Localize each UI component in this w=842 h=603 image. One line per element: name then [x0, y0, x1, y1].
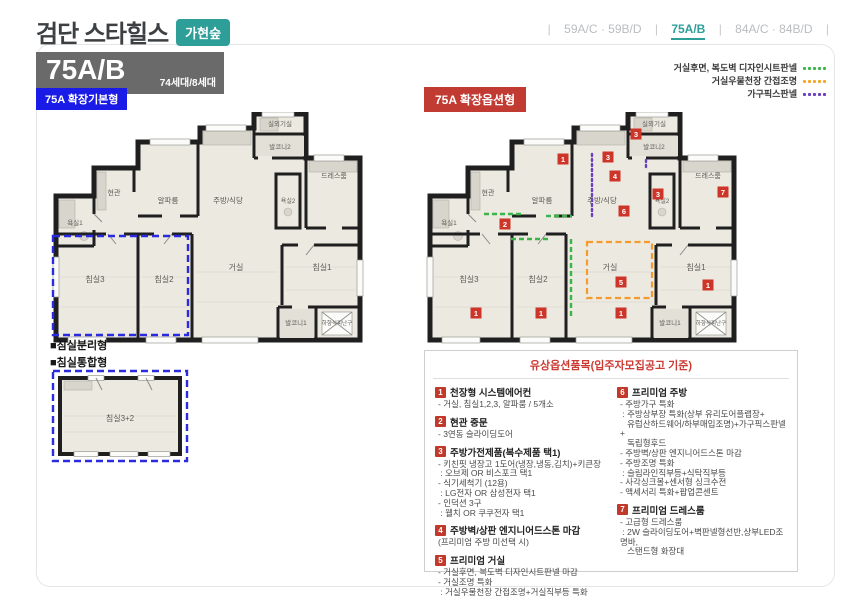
option-item-3: 3 주방가전제품(복수제품 택1) - 키친핏 냉장고 1도어(냉장,냉동,김치… [435, 445, 605, 519]
orange-dashed-swatch [801, 75, 826, 88]
legend-label: 거실우물천장 간접조명 [712, 76, 797, 86]
option-marker: 3 [656, 190, 660, 199]
floorplan-geometry-instance [53, 112, 363, 343]
tab-separator: | [548, 22, 551, 36]
option-item-4: 4 주방벽/상판 엔지니어드스톤 마감 (프리미엄 주방 미선택 시) [435, 523, 605, 548]
option-line: : 웰치 OR 쿠쿠전자 택1 [435, 509, 605, 519]
option-line: - 액세서리 특화+팝업콘센트 [617, 488, 787, 498]
option-marker: 7 [721, 188, 725, 197]
tab-separator: | [719, 22, 722, 36]
option-number-badge: 2 [435, 416, 446, 427]
option-marker: 5 [619, 278, 623, 287]
option-title: 프리미엄 거실 [450, 553, 505, 567]
legend-row-designsheet: 거실후면, 복도벽 디자인시트판넬 [674, 62, 826, 75]
legend-label: 거실후면, 복도벽 디자인시트판넬 [674, 63, 797, 73]
option-number-badge: 6 [617, 387, 628, 398]
option-number-badge: 4 [435, 525, 446, 536]
option-line: - 3연동 슬라이딩도어 [435, 430, 605, 440]
tab-separator: | [655, 22, 658, 36]
option-line: (프리미엄 주방 미선택 시) [435, 538, 605, 548]
legend-row-fix-panel: 가구픽스판넬 [674, 88, 826, 101]
option-item-1: 1 천장형 시스템에어컨 - 거실, 침실1,2,3, 알파룸 / 5개소 [435, 385, 605, 410]
plan-basic-badge: 75A 확장기본형 [36, 88, 127, 110]
option-line: : 거실우물천장 간접조명+거실직부등 특화 [435, 588, 605, 598]
options-panel-title: 유상옵션품목(입주자모집공고 기준) [433, 351, 789, 379]
room-label-combined: 침실3+2 [106, 413, 135, 423]
option-line: 유럽산하드웨어/하부매입조명)+가구픽스판넬+ [617, 420, 787, 440]
tab-separator: | [826, 22, 829, 36]
page-title: 검단 스타힐스 [36, 14, 168, 49]
option-marker: 2 [503, 220, 507, 229]
tab-75-active[interactable]: 75A/B [671, 22, 705, 40]
header: 검단 스타힐스가현숲 [36, 14, 230, 49]
option-marker: 1 [474, 309, 478, 318]
window [74, 452, 98, 457]
option-marker: 1 [619, 309, 623, 318]
option-marker: 1 [561, 155, 565, 164]
option-title: 프리미엄 주방 [632, 385, 687, 399]
option-marker: 3 [606, 153, 610, 162]
type-tab-bar: | 59A/C · 59B/D | 75A/B | 84A/C · 84B/D … [543, 22, 834, 36]
option-item-5: 5 프리미엄 거실 - 거실후면, 복도벽 디자인시트판넬 마감 - 거실조명 … [435, 553, 605, 597]
option-item-6: 6 프리미엄 주방 - 주방가구 특화 : 주방상부장 특화(상부 유리도어플랩… [617, 385, 787, 498]
tab-59[interactable]: 59A/C · 59B/D [564, 22, 641, 36]
option-marker: 1 [539, 309, 543, 318]
option-marker: 3 [634, 130, 638, 139]
option-number-badge: 1 [435, 387, 446, 398]
site-badge: 가현숲 [176, 19, 230, 46]
purple-dashed-swatch [801, 88, 826, 101]
option-item-2: 2 현관 중문 - 3연동 슬라이딩도어 [435, 415, 605, 440]
window [148, 452, 170, 457]
floorplan-option: 1 3 3 4 3 7 2 6 5 1 1 1 1 [424, 112, 744, 347]
option-line: : 2W 슬라이딩도어+벽판넬형선반,상부LED조명바, [617, 528, 787, 548]
green-dashed-swatch [801, 62, 826, 75]
option-item-7: 7 프리미엄 드레스룸 - 고급형 드레스룸 : 2W 슬라이딩도어+벽판넬형선… [617, 503, 787, 557]
floorplan-combined-mini: 침실3+2 [50, 368, 190, 464]
legend-row-indirect-light: 거실우물천장 간접조명 [674, 75, 826, 88]
closet [64, 381, 92, 390]
options-column-right: 6 프리미엄 주방 - 주방가구 특화 : 주방상부장 특화(상부 유리도어플랩… [617, 385, 787, 603]
tab-84[interactable]: 84A/C · 84B/D [735, 22, 812, 36]
floorplan-basic [50, 112, 370, 347]
option-marker: 6 [622, 207, 626, 216]
option-legend: 거실후면, 복도벽 디자인시트판넬 거실우물천장 간접조명 가구픽스판넬 [674, 62, 826, 101]
option-title: 주방가전제품(복수제품 택1) [450, 445, 560, 459]
option-title: 주방벽/상판 엔지니어드스톤 마감 [450, 523, 580, 537]
option-number-badge: 3 [435, 446, 446, 457]
paid-options-panel: 유상옵션품목(입주자모집공고 기준) 1 천장형 시스템에어컨 - 거실, 침실… [424, 350, 798, 572]
option-line: 스탠드형 화장대 [617, 547, 787, 557]
option-title: 현관 중문 [450, 415, 488, 429]
plan-option-badge: 75A 확장옵션형 [424, 87, 526, 112]
option-line: - 거실, 침실1,2,3, 알파룸 / 5개소 [435, 400, 605, 410]
option-number-badge: 7 [617, 504, 628, 515]
options-column-left: 1 천장형 시스템에어컨 - 거실, 침실1,2,3, 알파룸 / 5개소 2 … [435, 385, 605, 603]
option-marker: 1 [706, 281, 710, 290]
option-title: 천장형 시스템에어컨 [450, 385, 531, 399]
legend-label: 가구픽스판넬 [747, 89, 797, 99]
window [110, 452, 138, 457]
unit-count: 74세대/8세대 [160, 74, 216, 89]
option-title: 프리미엄 드레스룸 [632, 503, 705, 517]
option-number-badge: 5 [435, 555, 446, 566]
unit-type-code: 75A/B [46, 54, 125, 86]
caption-bedrooms-separated: ■침실분리형 [50, 337, 107, 353]
